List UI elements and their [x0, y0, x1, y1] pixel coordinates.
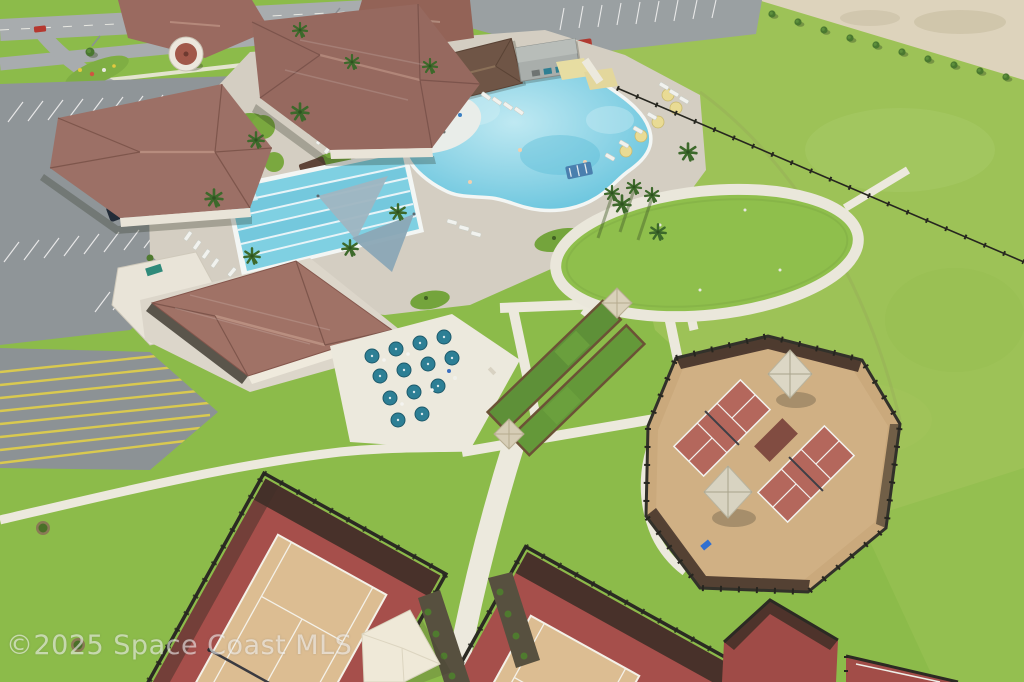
mls-watermark: ©2025 Space Coast MLS — [6, 630, 352, 661]
vehicle-on-road — [34, 25, 47, 32]
scene-canvas — [0, 0, 1024, 682]
aerial-photo: ©2025 Space Coast MLS — [0, 0, 1024, 682]
cupola-tower — [169, 37, 203, 71]
